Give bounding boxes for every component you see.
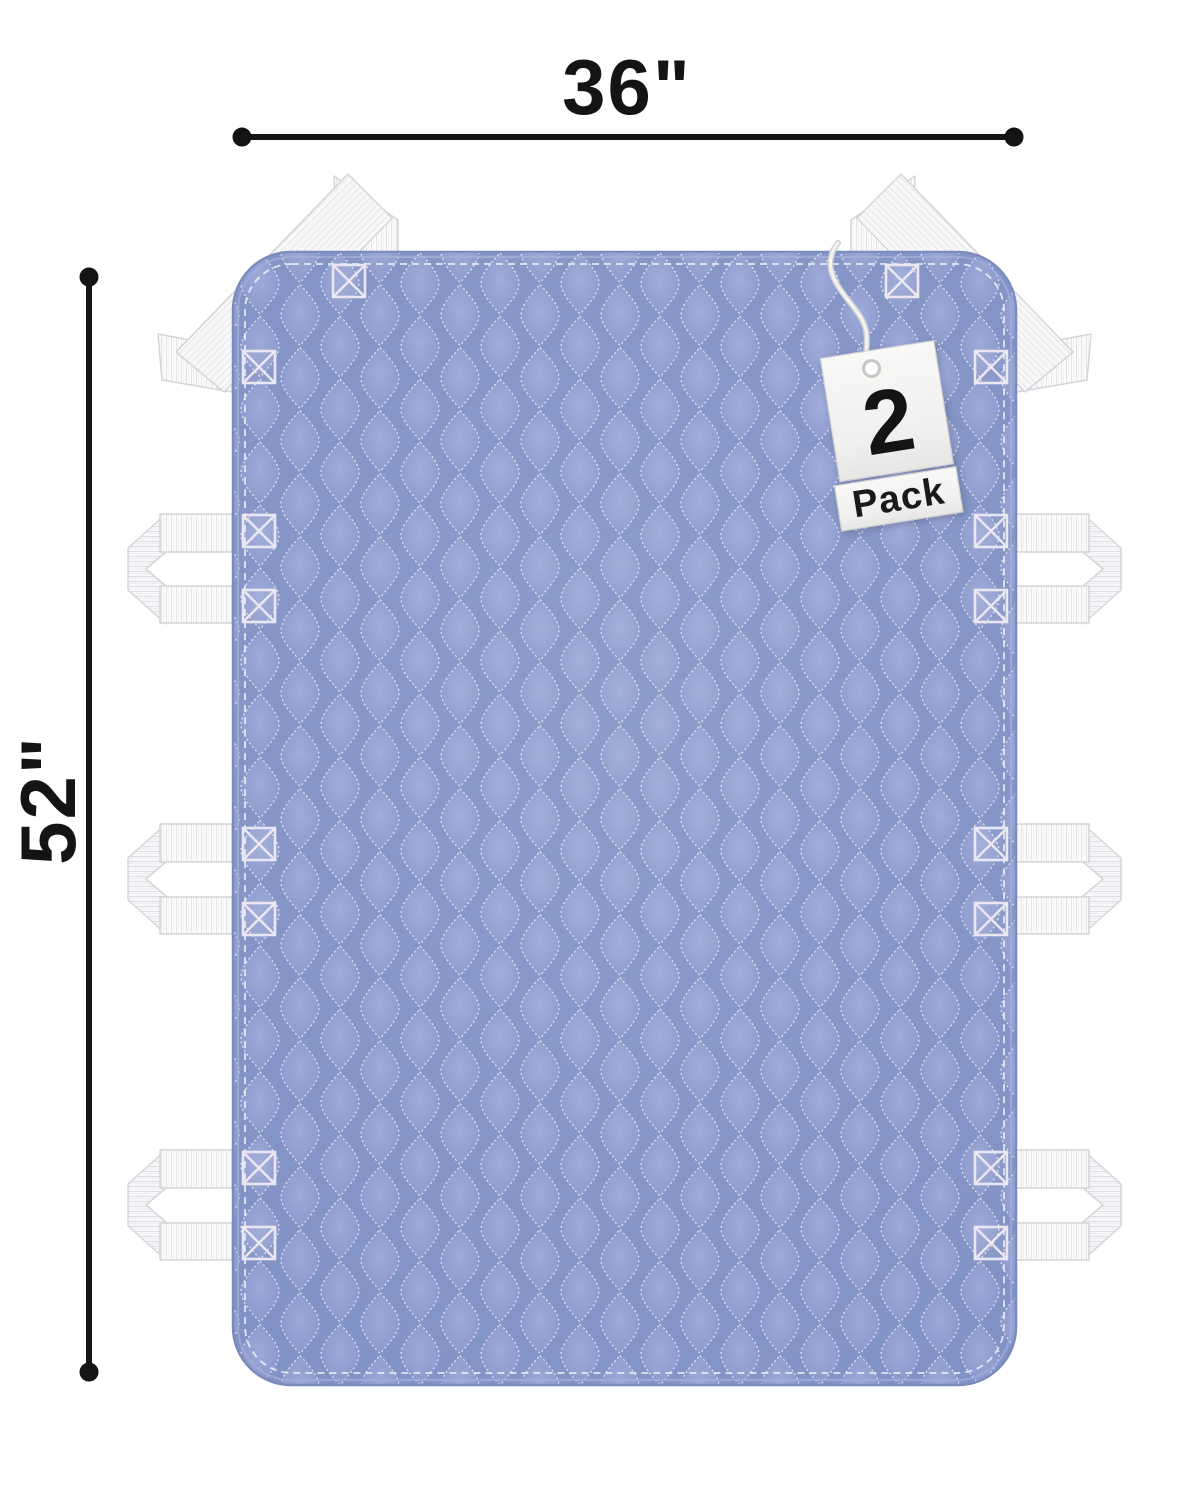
x-stitch-box: [243, 828, 275, 860]
x-stitch-box: [243, 1152, 275, 1184]
x-stitch-box: [975, 1152, 1007, 1184]
side-handle-right-1: [1007, 514, 1121, 624]
product-image: 2 Pack 36" 52": [0, 0, 1200, 1500]
side-handle-left-3: [128, 1150, 242, 1260]
width-dimension-label: 36": [497, 48, 757, 126]
height-dimension-label: 52": [9, 670, 95, 930]
x-stitch-box: [975, 351, 1007, 383]
tag-card-quantity: 2: [820, 340, 954, 483]
side-handle-left-1: [128, 514, 242, 624]
x-stitch-box: [975, 828, 1007, 860]
x-stitch-box: [975, 903, 1007, 935]
x-stitch-box: [975, 515, 1007, 547]
product-image-canvas: [0, 0, 1200, 1500]
x-stitch-box: [243, 351, 275, 383]
x-stitch-box: [975, 590, 1007, 622]
side-handle-right-3: [1007, 1150, 1121, 1260]
tag-quantity-text: 2: [825, 369, 952, 476]
hang-tag: 2 Pack: [820, 338, 976, 531]
x-stitch-box: [243, 1227, 275, 1259]
x-stitch-box: [975, 1227, 1007, 1259]
side-handle-left-2: [128, 824, 242, 934]
x-stitch-box: [333, 265, 365, 297]
x-stitch-box: [886, 265, 918, 297]
side-handle-right-2: [1007, 824, 1121, 934]
x-stitch-box: [243, 590, 275, 622]
x-stitch-box: [243, 515, 275, 547]
x-stitch-box: [243, 903, 275, 935]
